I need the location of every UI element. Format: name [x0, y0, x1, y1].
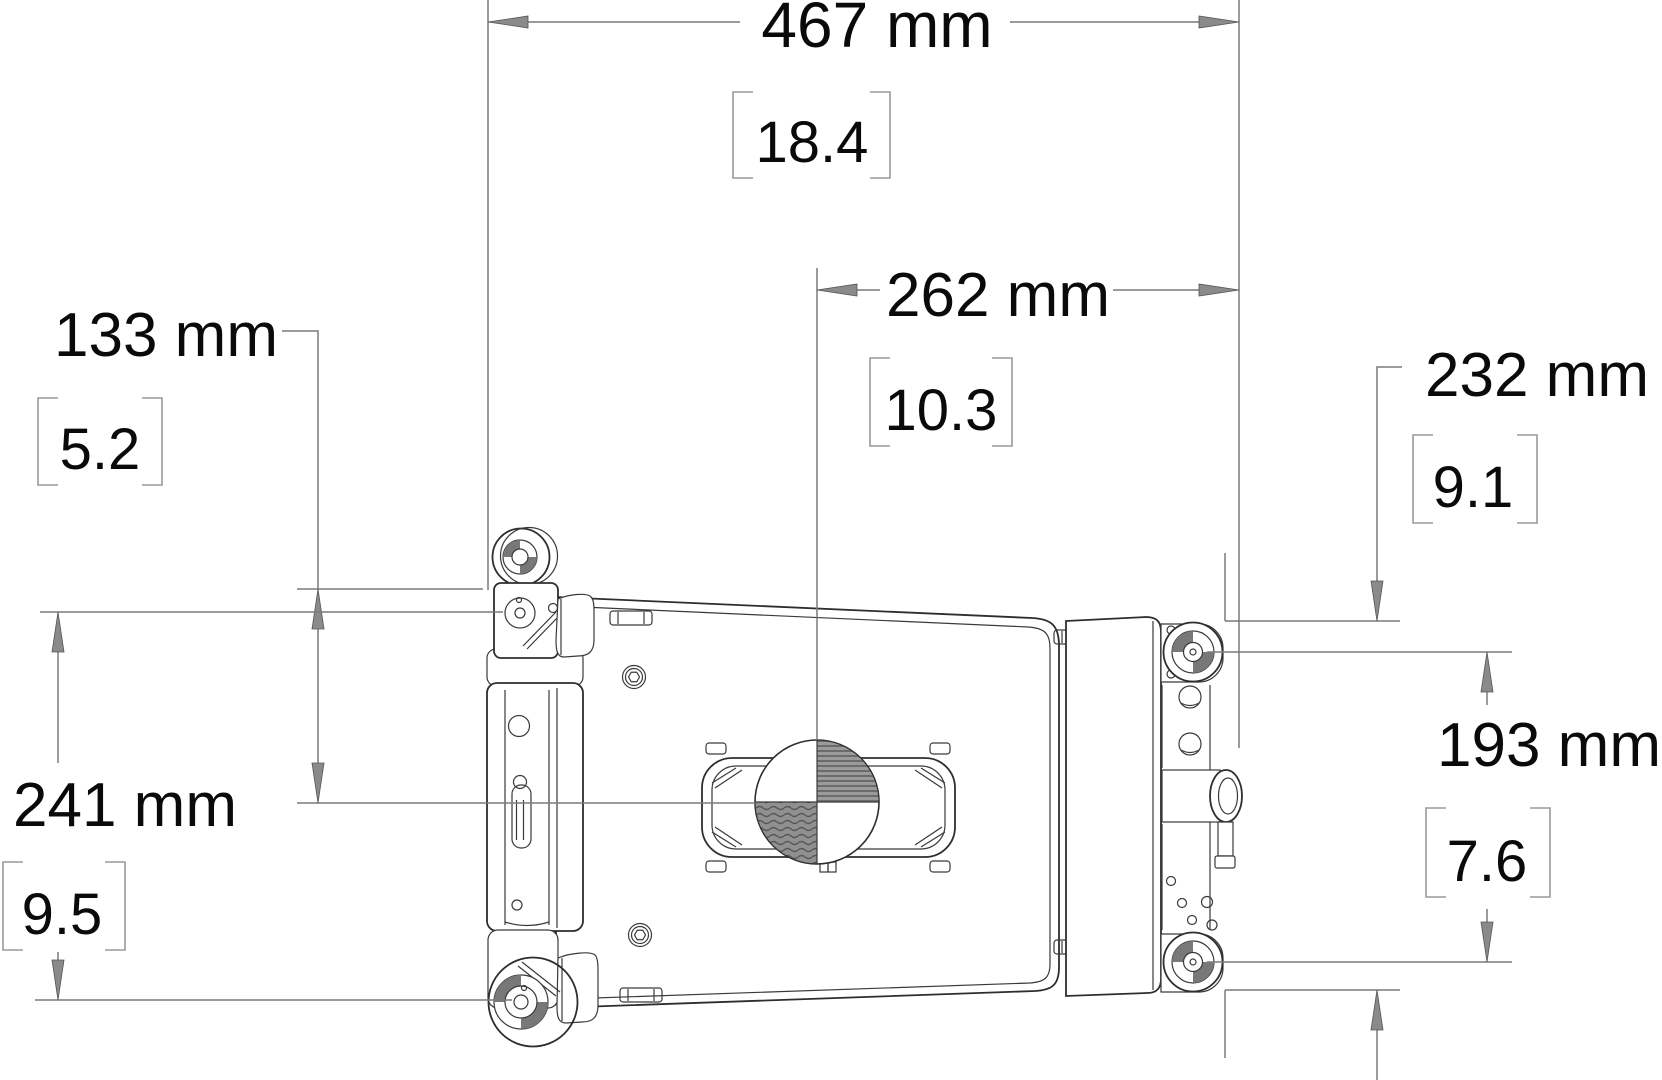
part-view: [487, 528, 1242, 1047]
dimension-arrow: [1371, 990, 1383, 1030]
handle-knob: [1162, 770, 1242, 868]
adjust-holes: [1178, 899, 1187, 908]
cg-symbol: [755, 740, 879, 864]
inch-bracket: [105, 862, 125, 950]
right-mount-column: [1066, 617, 1242, 996]
inch-bracket: [3, 862, 23, 950]
dimension-arrow: [1199, 16, 1239, 28]
dim-cg-below-top-mm-label: 133 mm: [54, 301, 278, 370]
top-left-roller: [493, 528, 558, 586]
inch-bracket: [1517, 435, 1537, 523]
hex-bolt-bottom-left: [629, 924, 652, 947]
top-clamp-cover: [556, 594, 594, 657]
dimension-arrow: [312, 589, 324, 629]
dimension-arrow: [488, 16, 528, 28]
hex-bolt-top-left: [623, 666, 646, 689]
dimension-arrow: [52, 960, 64, 1000]
dim-bottom-right-leader: [1225, 990, 1400, 1080]
strip-hole-2: [1179, 733, 1201, 755]
inch-bracket: [1426, 808, 1446, 897]
bottom-clamp-cover: [557, 953, 598, 1023]
dimension-arrow: [817, 284, 857, 296]
dim-overall-width-inch-label: 18.4: [756, 110, 869, 175]
dim-cg-from-right-inch-label: 10.3: [885, 378, 998, 443]
left-rail-assembly: [487, 528, 598, 1047]
dim-left-hole-span: 241 mm 9.5: [3, 612, 512, 1000]
dim-right-top-offset-inch-label: 9.1: [1433, 455, 1514, 520]
dimension-arrow: [1481, 922, 1493, 962]
rail-body: [487, 683, 583, 931]
dim-right-top-offset-mm-label: 232 mm: [1425, 341, 1649, 410]
dimension-arrow: [312, 763, 324, 803]
inch-bracket: [142, 398, 162, 485]
inch-bracket: [38, 398, 58, 485]
dim-right-top-offset: 232 mm 9.1: [1225, 341, 1649, 621]
dimension-arrow: [1371, 581, 1383, 621]
dimension-arrow: [52, 612, 64, 652]
inch-bracket: [870, 92, 890, 178]
dim-cg-from-right-mm-label: 262 mm: [886, 261, 1110, 330]
dim-left-hole-span-inch-label: 9.5: [22, 882, 103, 947]
inch-bracket: [1413, 435, 1433, 523]
dim-right-hole-span-mm-label: 193 mm: [1437, 711, 1661, 780]
dim-overall-width-mm-label: 467 mm: [761, 0, 992, 61]
technical-drawing: 467 mm 18.4 262 mm 10.3 133 mm 5.2: [0, 0, 1662, 1080]
inch-bracket: [1530, 808, 1550, 897]
strip-hole-1: [1179, 686, 1201, 708]
top-bracket: [494, 583, 560, 658]
dim-cg-below-top-inch-label: 5.2: [60, 417, 141, 482]
dimension-arrow: [1199, 284, 1239, 296]
dim-right-hole-span-inch-label: 7.6: [1447, 829, 1528, 894]
dimension-arrow: [1481, 652, 1493, 692]
dim-left-hole-span-mm-label: 241 mm: [13, 771, 237, 840]
dim-right-hole-span: 193 mm 7.6: [1207, 652, 1661, 962]
inch-bracket: [733, 92, 753, 178]
